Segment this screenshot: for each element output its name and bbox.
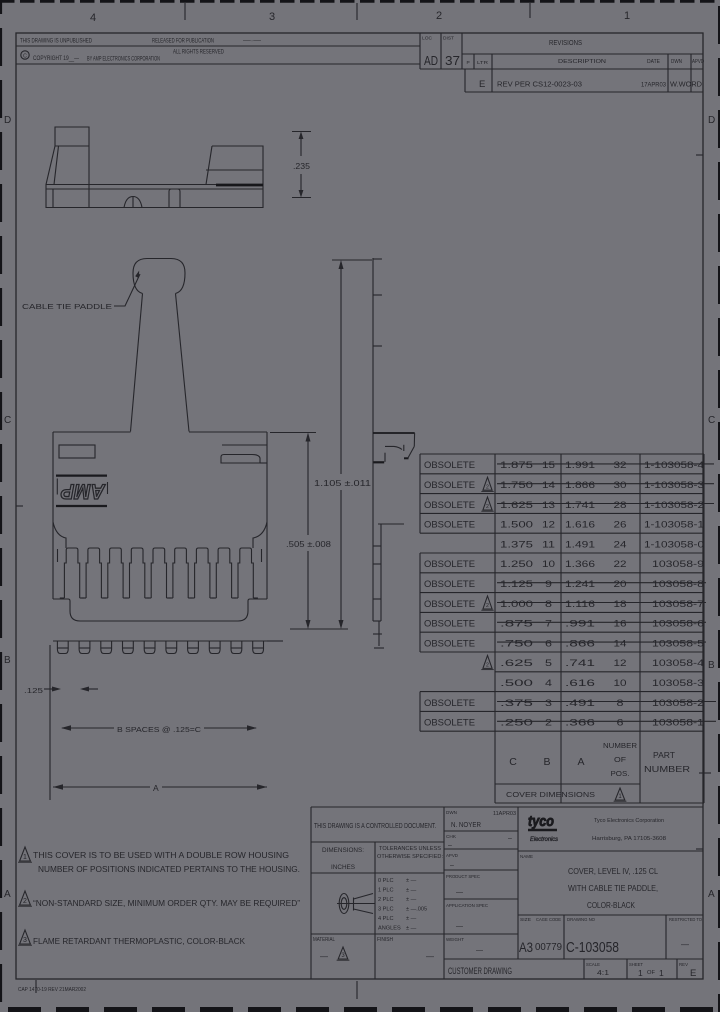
svg-text:1.491: 1.491 [565,539,595,549]
svg-text:4: 4 [545,678,552,688]
svg-text:20: 20 [614,579,627,589]
svg-text:103058-5: 103058-5 [652,638,704,648]
svg-text:Tyco Electronics Corporation: Tyco Electronics Corporation [594,818,664,824]
svg-text:DIST: DIST [443,36,454,41]
svg-text:NUMBER OF POSITIONS INDICATED: NUMBER OF POSITIONS INDICATED PERTAINS T… [38,864,300,874]
svg-text:2: 2 [436,10,442,22]
svg-text:DRAWING NO: DRAWING NO [567,917,595,922]
svg-text:—: — [681,940,689,949]
svg-text:D: D [4,115,11,126]
svg-text:.991: .991 [565,619,595,629]
svg-text:.866: .866 [565,638,595,648]
svg-text:COVER, LEVEL IV, .125 CL: COVER, LEVEL IV, .125 CL [568,867,658,876]
svg-text:12: 12 [542,520,555,530]
svg-text:D: D [708,115,715,126]
svg-text:1: 1 [23,854,27,861]
svg-text:A: A [577,756,584,768]
svg-text:DATE: DATE [647,59,660,65]
svg-text:PRODUCT SPEC: PRODUCT SPEC [446,874,480,880]
svg-text:OBSOLETE: OBSOLETE [424,480,475,490]
svg-text:103058-2: 103058-2 [652,698,704,708]
svg-text:OBSOLETE: OBSOLETE [424,698,475,708]
svg-text:± —.005: ± —.005 [406,907,427,913]
svg-text:TOLERANCES UNLESS: TOLERANCES UNLESS [379,846,441,852]
svg-text:A: A [708,889,715,900]
svg-text:COLOR-BLACK: COLOR-BLACK [587,901,635,910]
svg-text:103058-4: 103058-4 [652,658,704,668]
svg-text:.616: .616 [565,678,595,688]
svg-text:7: 7 [545,619,552,629]
svg-text:14: 14 [614,638,627,648]
svg-text:1-103058-2: 1-103058-2 [644,500,704,510]
svg-text:8: 8 [617,698,624,708]
svg-text:OBSOLETE: OBSOLETE [424,460,475,470]
svg-text:.250: .250 [500,718,533,728]
svg-text:SIZE: SIZE [520,917,531,922]
svg-text:2: 2 [486,504,489,510]
svg-text:1: 1 [638,968,643,978]
svg-text:3: 3 [545,698,552,708]
svg-text:103058-7: 103058-7 [652,599,704,609]
svg-text:24: 24 [614,539,627,549]
svg-text:10: 10 [614,678,627,688]
svg-text:CAP 1470-19 REV 21MAR2002: CAP 1470-19 REV 21MAR2002 [18,987,86,993]
svg-text:RESTRICTED TO: RESTRICTED TO [669,917,702,922]
svg-text:FLAME RETARDANT THERMOPLASTIC,: FLAME RETARDANT THERMOPLASTIC, COLOR-BLA… [33,936,245,946]
svg-text:—: — [320,952,328,961]
svg-text:1.741: 1.741 [565,500,595,510]
svg-text:APVD: APVD [446,853,458,859]
svg-text:SHEET: SHEET [629,962,643,967]
svg-text:INCHES: INCHES [331,865,355,871]
svg-text:.125: .125 [24,686,43,695]
svg-text:NUMBER: NUMBER [644,764,690,774]
svg-text:OBSOLETE: OBSOLETE [424,500,475,510]
svg-text:A: A [153,783,159,793]
svg-text:DWN: DWN [671,59,682,65]
svg-text:32: 32 [614,460,627,470]
svg-text:A3: A3 [519,940,533,955]
svg-text:AD: AD [424,54,438,68]
svg-text:BY AMP ELECTRONICS CORPORATION: BY AMP ELECTRONICS CORPORATION [87,57,160,63]
svg-text:1: 1 [659,968,664,978]
svg-text:CHK: CHK [446,834,457,840]
svg-text:1.116: 1.116 [565,599,595,609]
svg-text:± —: ± — [406,916,417,922]
svg-text:1-103058-3: 1-103058-3 [644,480,704,490]
svg-text:CAGE CODE: CAGE CODE [536,917,561,922]
svg-text:A: A [4,889,11,900]
svg-text:OBSOLETE: OBSOLETE [424,619,475,629]
svg-text:OF: OF [647,970,656,976]
svg-text:.741: .741 [565,658,595,668]
svg-text:1.625: 1.625 [500,500,533,510]
svg-text:3 PLC: 3 PLC [378,907,394,913]
svg-text:AMP: AMP [60,480,106,504]
svg-text:17APR03: 17APR03 [641,82,666,89]
svg-text:13: 13 [542,500,555,510]
svg-text:THIS DRAWING IS A CONTROLLED D: THIS DRAWING IS A CONTROLLED DOCUMENT. [314,821,436,830]
svg-text:THIS COVER IS TO BE USED WITH: THIS COVER IS TO BE USED WITH A DOUBLE R… [33,850,289,860]
svg-text:4 PLC: 4 PLC [378,916,394,922]
svg-text:1.616: 1.616 [565,520,595,530]
svg-text:LTR: LTR [477,60,489,66]
svg-text:ALL RIGHTS RESERVED: ALL RIGHTS RESERVED [173,50,224,56]
svg-text:1.875: 1.875 [500,460,533,470]
svg-text:1-103058-1: 1-103058-1 [644,520,704,530]
svg-text:1.500: 1.500 [500,520,533,530]
svg-text:28: 28 [614,500,627,510]
svg-text:POS.: POS. [611,769,630,778]
svg-text:2: 2 [545,718,552,728]
svg-text:10: 10 [542,559,555,569]
svg-text:OBSOLETE: OBSOLETE [424,559,475,569]
svg-text:OBSOLETE: OBSOLETE [424,579,475,589]
svg-text:14: 14 [542,480,555,490]
svg-text:C-103058: C-103058 [566,940,619,956]
svg-text:–: – [450,862,454,869]
svg-text:1 PLC: 1 PLC [378,888,394,894]
svg-text:103058-6: 103058-6 [652,619,704,629]
svg-text:3: 3 [23,937,27,944]
svg-text:1.105 ±.011: 1.105 ±.011 [314,479,372,488]
svg-text:OTHERWISE SPECIFIED:: OTHERWISE SPECIFIED: [377,854,443,860]
svg-text:E: E [690,968,696,979]
svg-text:11: 11 [542,539,555,549]
svg-text:5: 5 [545,658,552,668]
svg-text:OBSOLETE: OBSOLETE [424,638,475,648]
svg-text:1.000: 1.000 [500,599,533,609]
svg-text:E: E [479,79,485,90]
svg-text:CABLE TIE PADDLE: CABLE TIE PADDLE [22,302,112,311]
svg-text:DWN: DWN [446,810,458,816]
svg-text:W.WORD: W.WORD [670,80,702,89]
svg-text:THIS DRAWING IS UNPUBLISHED: THIS DRAWING IS UNPUBLISHED [20,38,92,45]
svg-text:MATERIAL: MATERIAL [313,937,335,943]
svg-text:B: B [543,756,550,768]
svg-text:B: B [4,655,11,666]
svg-text:2: 2 [486,663,489,669]
svg-text:B: B [708,660,715,671]
svg-text:.500: .500 [500,678,533,688]
svg-text:1.991: 1.991 [565,460,595,470]
svg-text:00779: 00779 [535,942,562,953]
svg-text:37: 37 [445,54,460,68]
svg-text:tyco: tyco [528,814,554,830]
svg-text:22: 22 [614,559,627,569]
svg-text:1.241: 1.241 [565,579,595,589]
svg-text:—: — [426,952,434,961]
svg-text:± —: ± — [406,897,417,903]
svg-text:4: 4 [90,12,96,24]
svg-text:COPYRIGHT 19__—: COPYRIGHT 19__— [33,56,79,62]
svg-text:C: C [4,415,11,426]
svg-text:9: 9 [545,579,552,589]
svg-text:26: 26 [614,520,627,530]
svg-text:103058-1: 103058-1 [652,718,704,728]
svg-text:1-103058-4: 1-103058-4 [644,460,704,470]
svg-text:REV PER CS12-0023-03: REV PER CS12-0023-03 [497,80,582,89]
svg-text:P: P [467,60,470,66]
svg-text:RELEASED FOR PUBLICATION: RELEASED FOR PUBLICATION [152,38,214,45]
svg-text:Harrisburg, PA 17105-3608: Harrisburg, PA 17105-3608 [592,836,666,842]
svg-text:DESCRIPTION: DESCRIPTION [558,59,606,65]
svg-text:NAME: NAME [520,854,533,860]
svg-text:103058-9: 103058-9 [652,559,704,569]
svg-text:LOC: LOC [422,36,433,41]
svg-text:2: 2 [23,898,27,905]
svg-text:C: C [23,54,27,60]
svg-text:± —: ± — [406,926,417,932]
svg-text:103058-3: 103058-3 [652,678,704,688]
svg-text:1: 1 [624,10,630,22]
svg-text:11APR03: 11APR03 [493,811,516,817]
svg-text:—·—: —·— [243,38,262,45]
svg-text:WITH CABLE TIE PADDLE,: WITH CABLE TIE PADDLE, [568,884,658,893]
svg-text:1.375: 1.375 [500,539,533,549]
svg-text:Electronics: Electronics [530,836,558,843]
svg-text:103058-8: 103058-8 [652,579,704,589]
svg-text:“NON-STANDARD SIZE, MINIMUM OR: “NON-STANDARD SIZE, MINIMUM ORDER QTY. M… [33,898,300,908]
svg-text:.505 ±.008: .505 ±.008 [286,540,332,549]
svg-text:1.366: 1.366 [565,559,595,569]
svg-text:.750: .750 [500,638,533,648]
svg-text:8: 8 [545,599,552,609]
svg-text:18: 18 [614,599,627,609]
svg-text:—: — [476,947,483,954]
svg-text:OBSOLETE: OBSOLETE [424,520,475,530]
svg-text:16: 16 [614,619,627,629]
svg-text:OF: OF [614,755,626,764]
svg-text:1-103058-0: 1-103058-0 [644,539,704,549]
svg-text:FINISH: FINISH [377,937,393,943]
svg-text:.491: .491 [565,698,595,708]
svg-text:REV: REV [679,962,689,967]
svg-text:COVER DIMENSIONS: COVER DIMENSIONS [506,790,595,799]
svg-text:PART: PART [653,750,675,760]
svg-text:C: C [708,415,715,426]
svg-text:± —: ± — [406,888,417,894]
svg-text:N. NOYER: N. NOYER [451,822,481,829]
svg-text:30: 30 [614,480,627,490]
svg-text:6: 6 [617,718,624,728]
svg-text:15: 15 [542,460,555,470]
svg-text:3: 3 [269,11,275,23]
svg-text:C: C [509,756,517,768]
svg-text:CUSTOMER DRAWING: CUSTOMER DRAWING [448,966,512,976]
svg-text:DIMENSIONS:: DIMENSIONS: [322,848,364,854]
svg-text:.375: .375 [500,698,533,708]
svg-text:.366: .366 [565,718,595,728]
svg-text:1.750: 1.750 [500,480,533,490]
svg-text:ANGLES: ANGLES [378,926,401,932]
svg-text:4:1: 4:1 [597,968,609,977]
svg-text:6: 6 [545,638,552,648]
svg-text:WEIGHT: WEIGHT [446,937,464,943]
svg-text:–: – [448,842,452,849]
svg-text:B SPACES @ .125=C: B SPACES @ .125=C [117,725,202,734]
svg-text:OBSOLETE: OBSOLETE [424,718,475,728]
svg-text:REVISIONS: REVISIONS [549,40,582,47]
svg-text:.235: .235 [293,162,311,171]
svg-text:1.125: 1.125 [500,579,533,589]
svg-text:0 PLC: 0 PLC [378,878,394,884]
svg-text:1.250: 1.250 [500,559,533,569]
svg-text:APPLICATION SPEC: APPLICATION SPEC [446,903,488,909]
svg-text:OBSOLETE: OBSOLETE [424,599,475,609]
svg-text:2: 2 [486,484,489,490]
svg-text:—: — [456,923,463,930]
svg-text:12: 12 [614,658,627,668]
svg-text:NUMBER: NUMBER [603,741,638,750]
svg-text:1.866: 1.866 [565,480,595,490]
svg-text:—: — [456,889,463,896]
svg-text:–: – [508,835,512,842]
svg-text:2: 2 [486,603,489,609]
svg-text:± —: ± — [406,878,417,884]
svg-text:2 PLC: 2 PLC [378,897,394,903]
svg-text:.875: .875 [500,619,533,629]
svg-text:APVD: APVD [692,59,704,65]
svg-text:.625: .625 [500,658,533,668]
svg-text:SCALE: SCALE [586,962,600,967]
